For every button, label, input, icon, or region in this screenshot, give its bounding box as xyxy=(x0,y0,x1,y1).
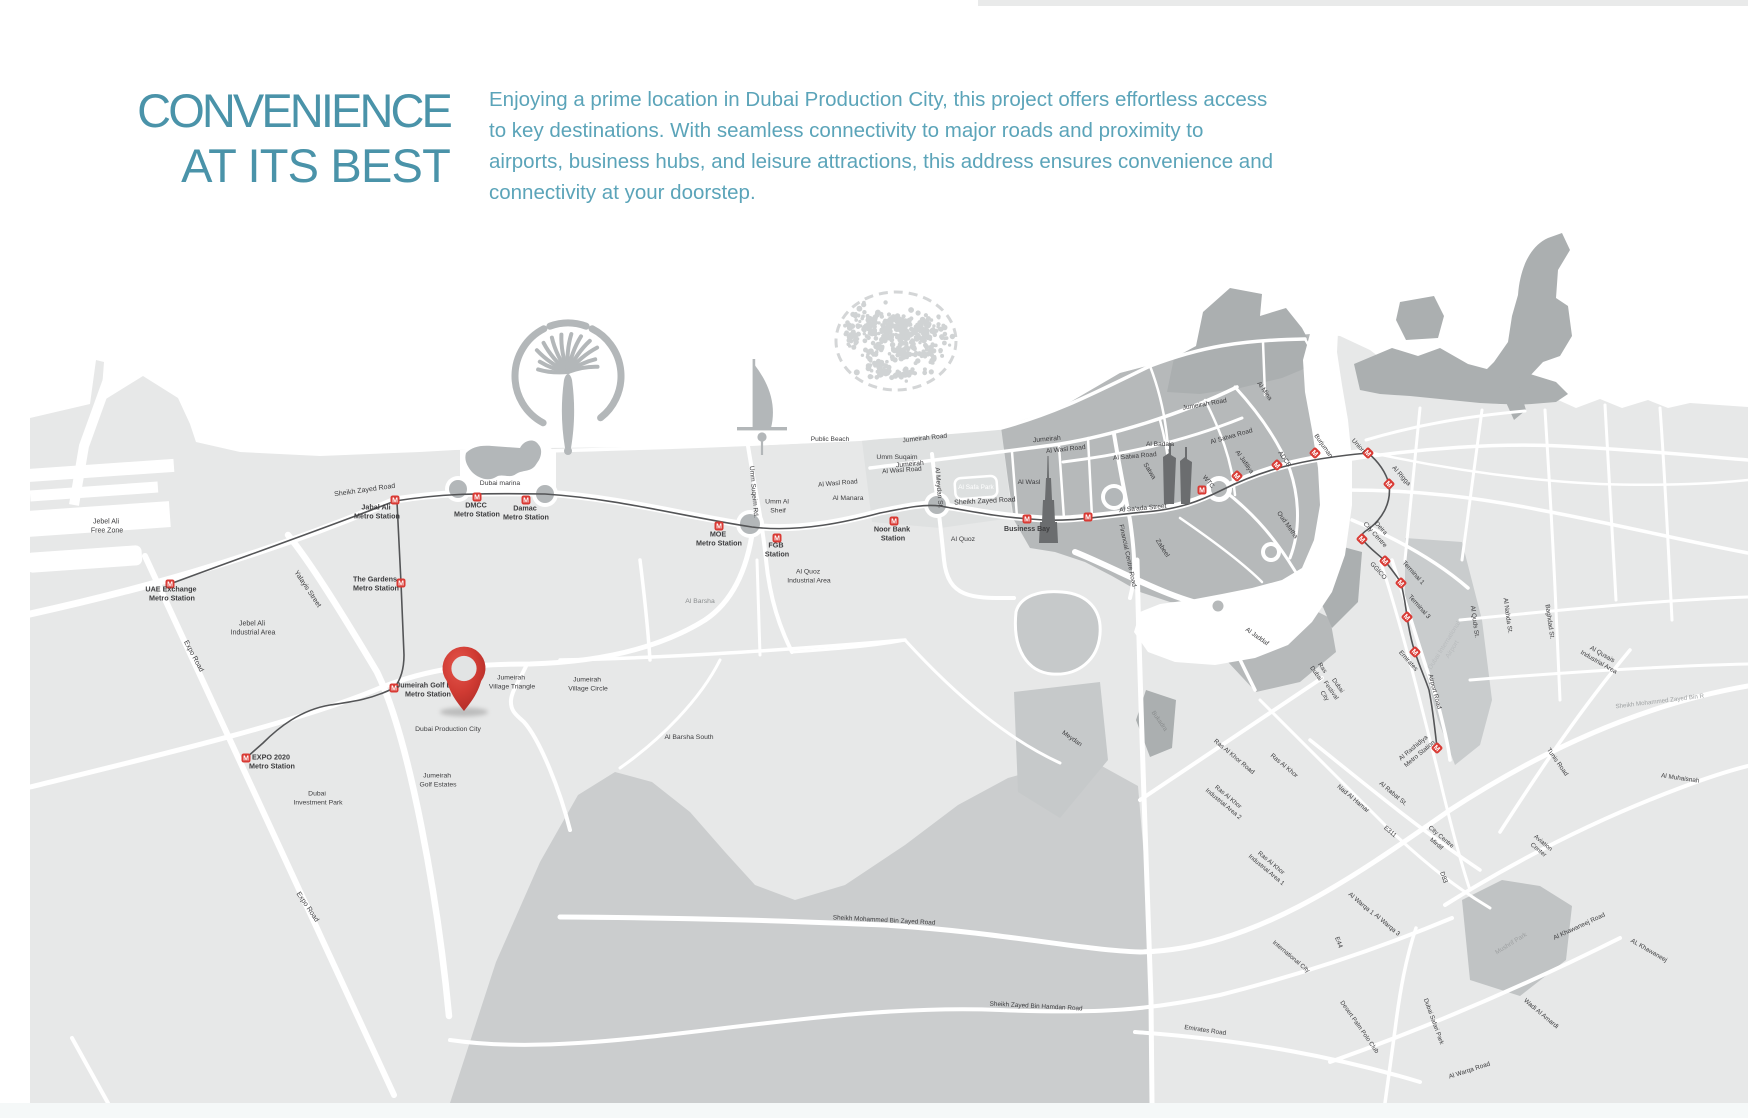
svg-text:Al Safa Park: Al Safa Park xyxy=(958,484,994,491)
svg-text:M: M xyxy=(392,498,398,505)
svg-text:Al Bada'a: Al Bada'a xyxy=(1146,441,1174,448)
svg-text:Al Manara: Al Manara xyxy=(833,495,864,502)
svg-text:Business Bay: Business Bay xyxy=(1004,526,1050,533)
svg-text:The Gardens Metro Station: The Gardens Metro Station xyxy=(353,574,399,592)
svg-text:UAE Exchange Metro Station: UAE Exchange Metro Station xyxy=(145,584,198,602)
svg-text:EXPO 2020 Metro Station: EXPO 2020 Metro Station xyxy=(249,752,295,770)
svg-text:Public Beach: Public Beach xyxy=(811,436,850,443)
svg-text:FGB Station: FGB Station xyxy=(765,540,789,558)
svg-text:Al Barsha South: Al Barsha South xyxy=(664,734,713,741)
svg-text:Dubai marina: Dubai marina xyxy=(480,480,521,487)
svg-text:M: M xyxy=(1024,517,1030,524)
svg-text:Al Quoz: Al Quoz xyxy=(951,536,976,543)
svg-text:M: M xyxy=(1199,488,1205,495)
svg-text:M: M xyxy=(1085,515,1091,522)
svg-text:M: M xyxy=(398,581,404,588)
svg-text:Al Barsha: Al Barsha xyxy=(685,598,715,605)
svg-text:Dubai Production City: Dubai Production City xyxy=(415,726,481,733)
svg-text:Al Wasl: Al Wasl xyxy=(1018,479,1041,486)
